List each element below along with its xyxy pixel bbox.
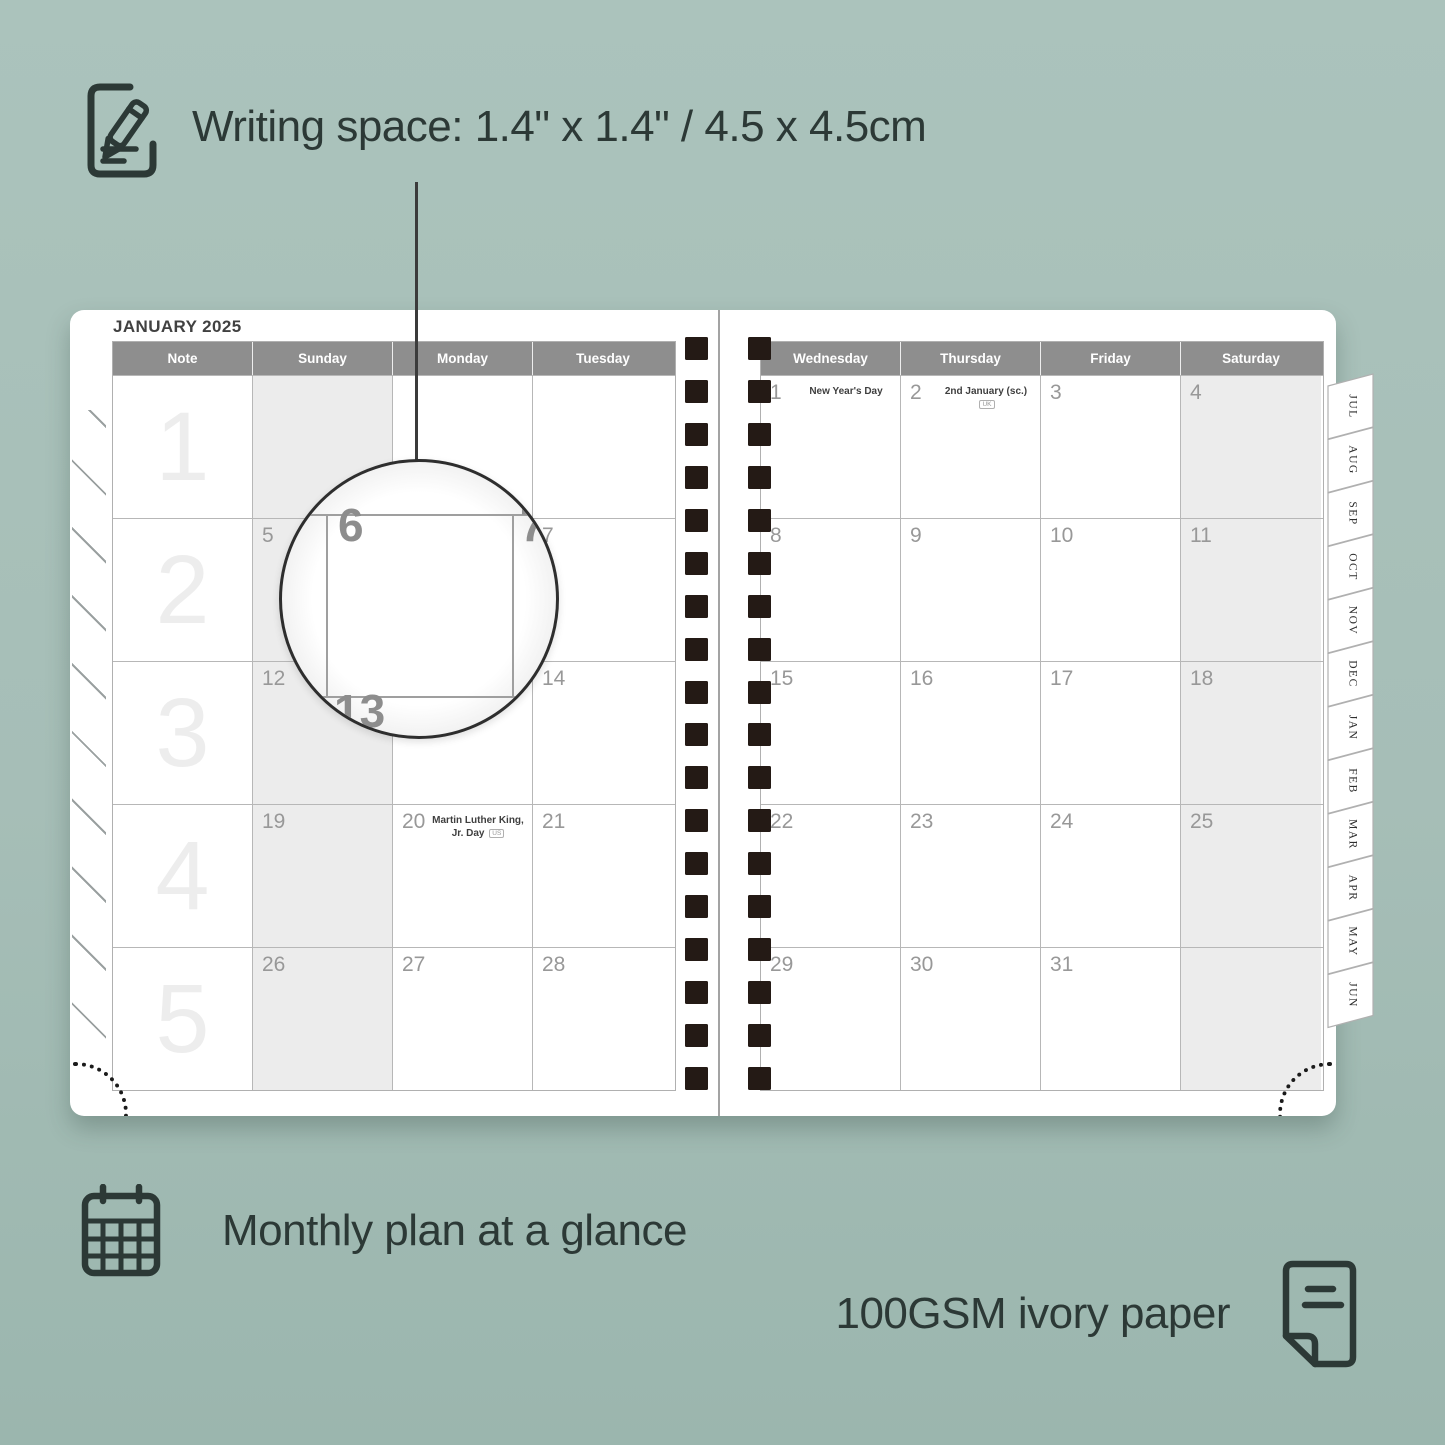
month-tab-label: JAN <box>1346 715 1358 741</box>
calendar-week-row: 5262728 <box>113 947 675 1090</box>
column-header-wednesday: Wednesday <box>761 342 901 375</box>
week-number-watermark: 4 <box>113 805 252 947</box>
calendar-week-row: 891011 <box>761 518 1323 661</box>
binding-hole <box>748 681 771 704</box>
binding-hole <box>685 466 708 489</box>
calendar-cell: 19 <box>253 805 393 947</box>
magnified-gridline <box>282 696 556 698</box>
date-number: 17 <box>1050 667 1073 691</box>
magnified-date-7: 7 <box>520 502 546 548</box>
calendar-cell: 10 <box>1041 519 1181 661</box>
column-header-thursday: Thursday <box>901 342 1041 375</box>
binding-hole <box>685 809 708 832</box>
month-tab-label: JUL <box>1346 394 1358 418</box>
calendar-cell: 15 <box>761 662 901 804</box>
binding-hole <box>748 337 771 360</box>
date-number: 25 <box>1190 810 1213 834</box>
date-number: 16 <box>910 667 933 691</box>
magnified-gridline <box>282 514 556 516</box>
binding-hole <box>748 1067 771 1090</box>
column-header-monday: Monday <box>393 342 533 375</box>
column-header-friday: Friday <box>1041 342 1181 375</box>
monthly-plan-label: Monthly plan at a glance <box>222 1206 687 1256</box>
binding-hole <box>748 509 771 532</box>
calendar-right-page: WednesdayThursdayFridaySaturday1New Year… <box>760 341 1324 1091</box>
calendar-week-row: 41920Martin Luther King, Jr. Day US21 <box>113 804 675 947</box>
binding-hole <box>685 423 708 446</box>
binding-hole <box>685 895 708 918</box>
date-number: 21 <box>542 810 565 834</box>
calendar-cell: 2 <box>113 519 253 661</box>
calendar-cell: 23 <box>901 805 1041 947</box>
binding-hole <box>748 852 771 875</box>
spiral-binding <box>682 337 774 1090</box>
column-header-sunday: Sunday <box>253 342 393 375</box>
binding-hole <box>748 552 771 575</box>
date-number: 31 <box>1050 953 1073 977</box>
calendar-header-row: WednesdayThursdayFridaySaturday <box>761 342 1323 375</box>
calendar-cell: 4 <box>1181 376 1321 518</box>
binding-hole <box>685 1024 708 1047</box>
magnified-date-6: 6 <box>338 502 364 548</box>
page-stack-hatching <box>72 410 106 1070</box>
column-header-saturday: Saturday <box>1181 342 1321 375</box>
binding-hole <box>748 895 771 918</box>
calendar-cell <box>533 376 673 518</box>
month-tab-label: SEP <box>1346 501 1358 525</box>
binding-hole <box>685 938 708 961</box>
date-number: 5 <box>262 524 274 548</box>
month-tab-label: DEC <box>1346 660 1358 688</box>
month-tab-label: OCT <box>1346 553 1358 581</box>
binding-hole <box>685 981 708 1004</box>
calendar-cell: 8 <box>761 519 901 661</box>
planner-spread: JANUARY 2025 NoteSundayMondayTuesday1256… <box>70 310 1336 1116</box>
calendar-cell: 28 <box>533 948 673 1090</box>
calendar-cell: 3 <box>1041 376 1181 518</box>
binding-hole-column <box>685 337 708 1090</box>
binding-hole <box>685 595 708 618</box>
binding-hole <box>748 380 771 403</box>
date-number: 2 <box>910 381 922 405</box>
column-header-note: Note <box>113 342 253 375</box>
month-tab-label: APR <box>1346 875 1358 902</box>
calendar-cell: 25 <box>1181 805 1321 947</box>
binding-hole <box>748 423 771 446</box>
binding-hole <box>748 981 771 1004</box>
calendar-cell <box>1181 948 1321 1090</box>
calendar-cell: 5 <box>113 948 253 1090</box>
calendar-week-row: 15161718 <box>761 661 1323 804</box>
calendar-cell: 21 <box>533 805 673 947</box>
week-number-watermark: 2 <box>113 519 252 661</box>
binding-hole <box>685 681 708 704</box>
pencil-note-icon <box>84 72 166 182</box>
month-tab-label: JUN <box>1346 982 1358 1008</box>
month-tab-label: MAY <box>1346 926 1358 956</box>
binding-hole <box>685 337 708 360</box>
date-number: 9 <box>910 524 922 548</box>
date-number: 26 <box>262 953 285 977</box>
holiday-label: New Year's Day <box>795 385 897 398</box>
calendar-cell: 29 <box>761 948 901 1090</box>
date-number: 11 <box>1190 524 1212 548</box>
binding-hole-column <box>748 337 771 1090</box>
binding-hole <box>685 638 708 661</box>
calendar-cell: 26 <box>253 948 393 1090</box>
calendar-cell: 4 <box>113 805 253 947</box>
calendar-cell: 1 <box>113 376 253 518</box>
holiday-label: Martin Luther King, Jr. Day US <box>427 814 529 840</box>
calendar-cell: 17 <box>1041 662 1181 804</box>
date-number: 20 <box>402 810 425 834</box>
month-tabs-strip: JULAUGSEPOCTNOVDECJANFEBMARAPRMAYJUN <box>1326 372 1376 1032</box>
calendar-cell: 16 <box>901 662 1041 804</box>
calendar-week-row: 1New Year's Day 22nd January (sc.) UK34 <box>761 375 1323 518</box>
date-number: 14 <box>542 667 565 691</box>
magnified-date-13: 13 <box>334 688 385 734</box>
month-tab-label: NOV <box>1346 606 1358 635</box>
column-header-tuesday: Tuesday <box>533 342 673 375</box>
binding-hole <box>748 938 771 961</box>
binding-hole <box>748 638 771 661</box>
calendar-cell: 22nd January (sc.) UK <box>901 376 1041 518</box>
binding-hole <box>748 723 771 746</box>
calendar-cell: 18 <box>1181 662 1321 804</box>
calendar-cell: 9 <box>901 519 1041 661</box>
date-number: 3 <box>1050 381 1062 405</box>
magnified-gridline <box>512 514 514 698</box>
calendar-cell: 27 <box>393 948 533 1090</box>
magnified-gridline <box>326 514 328 698</box>
week-number-watermark: 1 <box>113 376 252 518</box>
month-tab-label: MAR <box>1346 819 1358 850</box>
country-badge: UK <box>979 400 994 410</box>
paper-annotation: 100GSM ivory paper <box>0 1258 1358 1370</box>
binding-hole <box>685 552 708 575</box>
month-tab-label: FEB <box>1346 768 1358 794</box>
callout-pointer-line <box>415 182 418 462</box>
writing-space-annotation: Writing space: 1.4" x 1.4" / 4.5 x 4.5cm <box>84 72 926 182</box>
binding-hole <box>748 466 771 489</box>
month-title: JANUARY 2025 <box>113 317 242 337</box>
date-number: 23 <box>910 810 933 834</box>
calendar-cell: 3 <box>113 662 253 804</box>
date-number: 18 <box>1190 667 1213 691</box>
calendar-cell: 22 <box>761 805 901 947</box>
binding-hole <box>685 852 708 875</box>
date-number: 30 <box>910 953 933 977</box>
calendar-cell: 30 <box>901 948 1041 1090</box>
binding-hole <box>685 509 708 532</box>
calendar-cell: 24 <box>1041 805 1181 947</box>
binding-hole <box>685 1067 708 1090</box>
paper-sheet-icon <box>1274 1258 1358 1370</box>
week-number-watermark: 5 <box>113 948 252 1090</box>
paper-label: 100GSM ivory paper <box>835 1289 1230 1339</box>
binding-hole <box>748 809 771 832</box>
week-number-watermark: 3 <box>113 662 252 804</box>
month-tab-label: AUG <box>1346 445 1358 474</box>
calendar-cell: 1New Year's Day <box>761 376 901 518</box>
calendar-cell: 11 <box>1181 519 1321 661</box>
date-number: 12 <box>262 667 285 691</box>
date-number: 27 <box>402 953 425 977</box>
calendar-week-row: 22232425 <box>761 804 1323 947</box>
calendar-cell: 14 <box>533 662 673 804</box>
binding-hole <box>685 766 708 789</box>
date-number: 24 <box>1050 810 1073 834</box>
writing-space-label: Writing space: 1.4" x 1.4" / 4.5 x 4.5cm <box>192 102 926 152</box>
date-number: 28 <box>542 953 565 977</box>
binding-hole <box>748 766 771 789</box>
binding-hole <box>685 380 708 403</box>
date-number: 19 <box>262 810 285 834</box>
binding-hole <box>748 1024 771 1047</box>
calendar-cell: 20Martin Luther King, Jr. Day US <box>393 805 533 947</box>
binding-hole <box>748 595 771 618</box>
date-number: 4 <box>1190 381 1202 405</box>
country-badge: US <box>489 829 504 839</box>
calendar-week-row: 293031 <box>761 947 1323 1090</box>
date-number: 10 <box>1050 524 1073 548</box>
calendar-header-row: NoteSundayMondayTuesday <box>113 342 675 375</box>
holiday-label: 2nd January (sc.) UK <box>935 385 1037 411</box>
writing-space-magnifier: 6 7 13 <box>279 459 559 739</box>
binding-hole <box>685 723 708 746</box>
calendar-cell: 31 <box>1041 948 1181 1090</box>
